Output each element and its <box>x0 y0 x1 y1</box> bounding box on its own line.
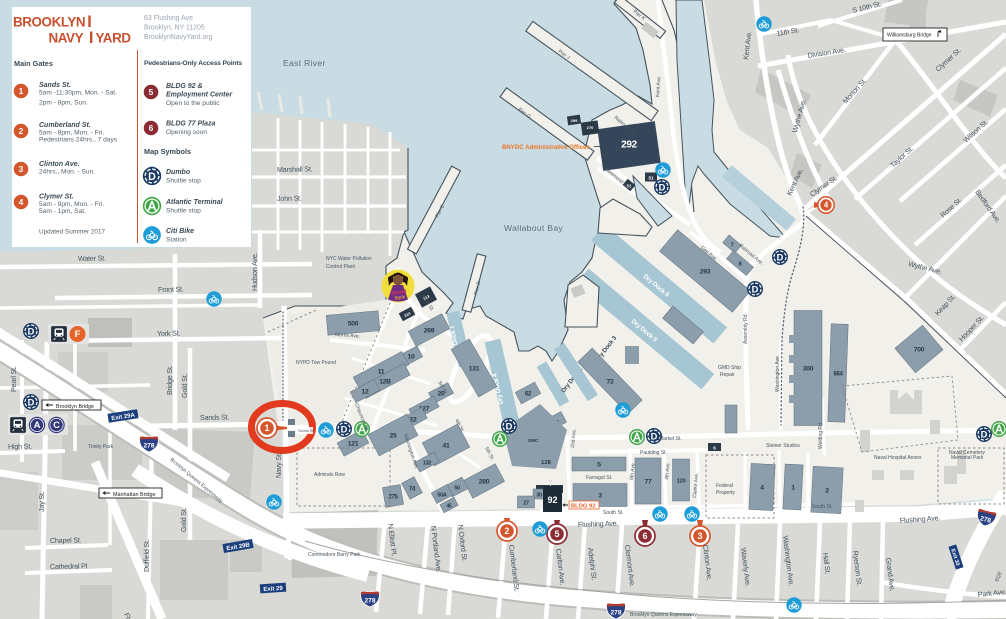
svg-text:Navy St.: Navy St. <box>274 452 283 478</box>
svg-text:Admirals Row: Admirals Row <box>314 472 345 478</box>
svg-text:2: 2 <box>504 526 509 536</box>
svg-text:YARD: YARD <box>96 31 132 46</box>
svg-text:27: 27 <box>523 500 529 506</box>
svg-text:30: 30 <box>536 492 542 498</box>
svg-text:Wallabout Bay: Wallabout Bay <box>504 223 563 233</box>
svg-text:12B: 12B <box>379 378 391 385</box>
svg-text:24hrs., Mon. - Sun.: 24hrs., Mon. - Sun. <box>39 168 95 175</box>
svg-text:Property: Property <box>716 490 735 496</box>
svg-text:6: 6 <box>642 531 647 541</box>
svg-text:Main Gates: Main Gates <box>14 59 53 68</box>
svg-text:Williamsburg Bridge: Williamsburg Bridge <box>887 33 932 39</box>
svg-text:74: 74 <box>409 486 416 492</box>
svg-text:John St.: John St. <box>277 194 302 203</box>
svg-text:4: 4 <box>19 197 24 207</box>
svg-text:77: 77 <box>645 478 652 485</box>
svg-text:Hudson Ave.: Hudson Ave. <box>250 252 259 291</box>
svg-text:Market St.: Market St. <box>659 436 682 442</box>
svg-text:Water St.: Water St. <box>78 254 106 263</box>
svg-text:BROOKLYN: BROOKLYN <box>13 15 85 30</box>
svg-text:Jay St.: Jay St. <box>37 491 46 512</box>
svg-text:41: 41 <box>443 442 450 449</box>
svg-text:Sands St.: Sands St. <box>200 412 230 422</box>
svg-text:5am - 1pm, Sat.: 5am - 1pm, Sat. <box>39 208 86 215</box>
svg-text:293: 293 <box>700 268 711 275</box>
svg-text:Flushing Ave.: Flushing Ave. <box>578 519 619 529</box>
svg-text:292: 292 <box>621 139 638 150</box>
svg-text:NYC Water Pollution: NYC Water Pollution <box>326 256 372 262</box>
svg-text:3: 3 <box>19 164 24 174</box>
svg-text:121: 121 <box>348 440 359 447</box>
svg-text:Shuttle stop: Shuttle stop <box>166 208 201 215</box>
svg-text:10: 10 <box>408 353 415 360</box>
svg-text:York St.: York St. <box>157 329 181 338</box>
svg-text:1: 1 <box>19 86 24 96</box>
svg-text:Pedestrians 24hrs., 7 days: Pedestrians 24hrs., 7 days <box>39 137 118 144</box>
svg-text:Trinity Park: Trinity Park <box>88 444 114 450</box>
svg-text:GMC: GMC <box>528 438 539 443</box>
svg-text:F: F <box>75 329 81 340</box>
svg-text:664: 664 <box>833 371 843 377</box>
svg-text:Gold St.: Gold St. <box>179 507 188 532</box>
svg-text:Front St.: Front St. <box>158 285 184 294</box>
svg-text:5: 5 <box>149 87 154 97</box>
svg-text:Manhattan Bridge: Manhattan Bridge <box>113 492 156 498</box>
svg-text:Sands St.: Sands St. <box>39 82 71 89</box>
svg-text:Updated Summer 2017: Updated Summer 2017 <box>39 229 106 236</box>
svg-text:Clymer St.: Clymer St. <box>39 194 74 201</box>
svg-text:4: 4 <box>760 484 764 491</box>
svg-text:280: 280 <box>479 478 490 485</box>
svg-text:Cumberland St.: Cumberland St. <box>39 122 91 129</box>
svg-text:300: 300 <box>803 365 814 372</box>
svg-text:25: 25 <box>390 432 397 439</box>
svg-text:South St.: South St. <box>603 510 624 516</box>
svg-text:51: 51 <box>648 176 654 181</box>
svg-text:132: 132 <box>423 460 432 466</box>
svg-text:1: 1 <box>791 484 795 491</box>
svg-text:72: 72 <box>607 378 614 385</box>
svg-text:131: 131 <box>469 365 480 372</box>
svg-text:Naval Hospital Annex: Naval Hospital Annex <box>874 455 922 461</box>
svg-text:2: 2 <box>19 126 24 136</box>
svg-text:Shuttle stop: Shuttle stop <box>166 178 201 185</box>
svg-text:120: 120 <box>677 478 686 484</box>
svg-text:700: 700 <box>914 346 925 353</box>
svg-text:5am -11:30pm, Mon. - Sat.: 5am -11:30pm, Mon. - Sat. <box>39 89 117 96</box>
svg-text:62: 62 <box>525 391 532 397</box>
svg-text:4: 4 <box>824 201 829 210</box>
svg-text:Opening soon: Opening soon <box>166 129 207 136</box>
svg-text:Repair: Repair <box>720 372 735 378</box>
svg-text:Dumbo: Dumbo <box>166 169 191 176</box>
svg-text:Duffield St.: Duffield St. <box>142 539 151 572</box>
svg-text:270: 270 <box>587 125 594 130</box>
svg-text:NYPD Tow Pound: NYPD Tow Pound <box>296 360 336 366</box>
svg-text:92: 92 <box>547 495 557 505</box>
svg-text:Paulding St.: Paulding St. <box>640 450 667 456</box>
svg-text:Pedestrians-Only Access Points: Pedestrians-Only Access Points <box>144 60 242 67</box>
svg-text:63 Flushing Ave: 63 Flushing Ave <box>144 15 193 22</box>
svg-text:2pm - 8pm, Sun.: 2pm - 8pm, Sun. <box>39 100 88 107</box>
svg-text:Farragut St.: Farragut St. <box>586 475 612 481</box>
svg-text:6: 6 <box>713 446 716 451</box>
svg-text:BNYDC Administrative Offices: BNYDC Administrative Offices <box>502 144 590 151</box>
svg-text:Marshall St.: Marshall St. <box>277 164 313 174</box>
svg-text:299: 299 <box>571 118 578 123</box>
svg-text:BLDG 92: BLDG 92 <box>571 504 595 510</box>
svg-text:Clinton Ave.: Clinton Ave. <box>39 161 80 168</box>
svg-text:2: 2 <box>825 487 829 494</box>
svg-text:Assembly Rd.: Assembly Rd. <box>743 313 749 344</box>
svg-text:High St.: High St. <box>8 442 32 451</box>
svg-text:Gold St.: Gold St. <box>180 373 189 398</box>
svg-text:50: 50 <box>454 485 460 491</box>
svg-text:5: 5 <box>597 461 601 468</box>
svg-text:Sands St.: Sands St. <box>298 429 314 433</box>
svg-text:A: A <box>34 420 41 431</box>
svg-text:BLDG 92 &: BLDG 92 & <box>166 83 203 90</box>
svg-text:Bridge St.: Bridge St. <box>165 365 174 395</box>
svg-text:45: 45 <box>447 503 452 509</box>
svg-text:3: 3 <box>598 492 602 499</box>
svg-text:Atlantic Terminal: Atlantic Terminal <box>165 199 224 206</box>
svg-text:Citi Bike: Citi Bike <box>166 228 194 235</box>
svg-text:Open to the public: Open to the public <box>166 100 220 107</box>
svg-text:East River: East River <box>283 58 326 68</box>
svg-text:Washington Ave.: Washington Ave. <box>775 355 781 392</box>
svg-text:8: 8 <box>739 261 742 267</box>
svg-text:1: 1 <box>264 423 269 433</box>
svg-text:5am - 8pm, Mon. - Fri.: 5am - 8pm, Mon. - Fri. <box>39 129 104 136</box>
svg-text:Map Symbols: Map Symbols <box>144 147 191 156</box>
svg-text:Brooklyn, NY 11205: Brooklyn, NY 11205 <box>144 25 205 32</box>
svg-text:South St.: South St. <box>812 504 833 510</box>
svg-text:12: 12 <box>362 388 369 395</box>
svg-text:5am - 9pm, Mon. - Fri.: 5am - 9pm, Mon. - Fri. <box>39 201 104 208</box>
svg-text:Employment Center: Employment Center <box>166 92 233 99</box>
svg-text:Memorial Park: Memorial Park <box>951 455 984 461</box>
svg-text:500: 500 <box>348 320 359 327</box>
svg-text:Pearl St.: Pearl St. <box>9 366 18 392</box>
svg-text:Welding Rd.: Welding Rd. <box>818 422 824 449</box>
svg-text:7: 7 <box>731 242 734 248</box>
svg-text:128: 128 <box>541 460 551 466</box>
svg-text:269: 269 <box>424 327 435 334</box>
svg-text:Brooklyn Queens Expressway: Brooklyn Queens Expressway <box>630 612 697 618</box>
svg-text:Federal: Federal <box>716 483 733 489</box>
svg-text:GMD Ship: GMD Ship <box>718 365 741 371</box>
svg-text:Station: Station <box>166 237 187 244</box>
svg-text:Commodore Barry Park: Commodore Barry Park <box>308 552 361 558</box>
svg-text:Control Plant: Control Plant <box>326 264 356 270</box>
svg-text:Steiner Studios: Steiner Studios <box>766 443 800 449</box>
svg-text:6: 6 <box>149 123 154 133</box>
svg-text:50A: 50A <box>437 492 447 498</box>
svg-text:NAVY: NAVY <box>49 31 84 46</box>
svg-text:3: 3 <box>697 531 702 541</box>
svg-text:Chapel St.: Chapel St. <box>50 535 82 545</box>
svg-text:C: C <box>53 420 60 431</box>
svg-text:Cathedral Pl.: Cathedral Pl. <box>50 561 89 571</box>
svg-text:Brooklyn Bridge: Brooklyn Bridge <box>56 404 94 410</box>
svg-text:BLDG 77 Plaza: BLDG 77 Plaza <box>166 121 216 128</box>
svg-text:5: 5 <box>554 529 559 539</box>
svg-text:BrooklynNavyYard.org: BrooklynNavyYard.org <box>144 34 213 41</box>
